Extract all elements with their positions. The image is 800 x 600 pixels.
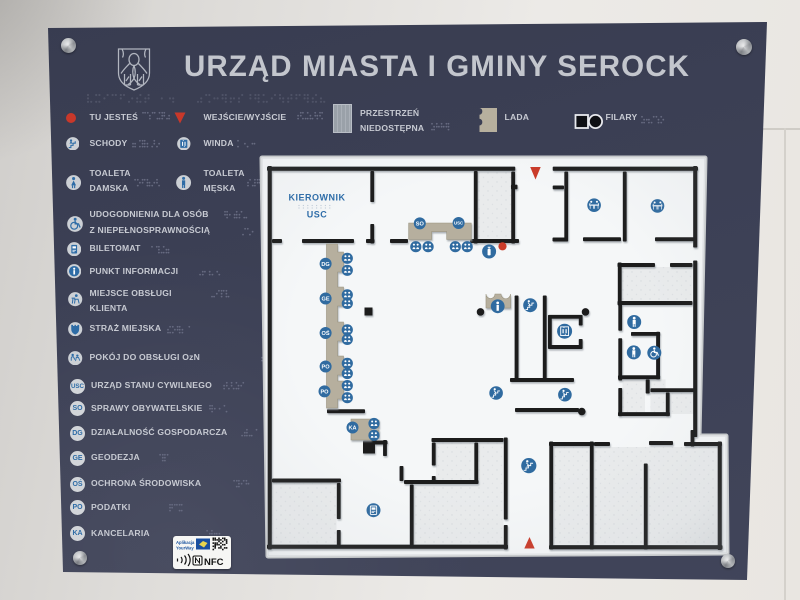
svg-text:YourWay: YourWay xyxy=(176,546,194,551)
svg-text:NFC: NFC xyxy=(204,557,224,568)
svg-text:Aplikacja: Aplikacja xyxy=(176,540,195,545)
